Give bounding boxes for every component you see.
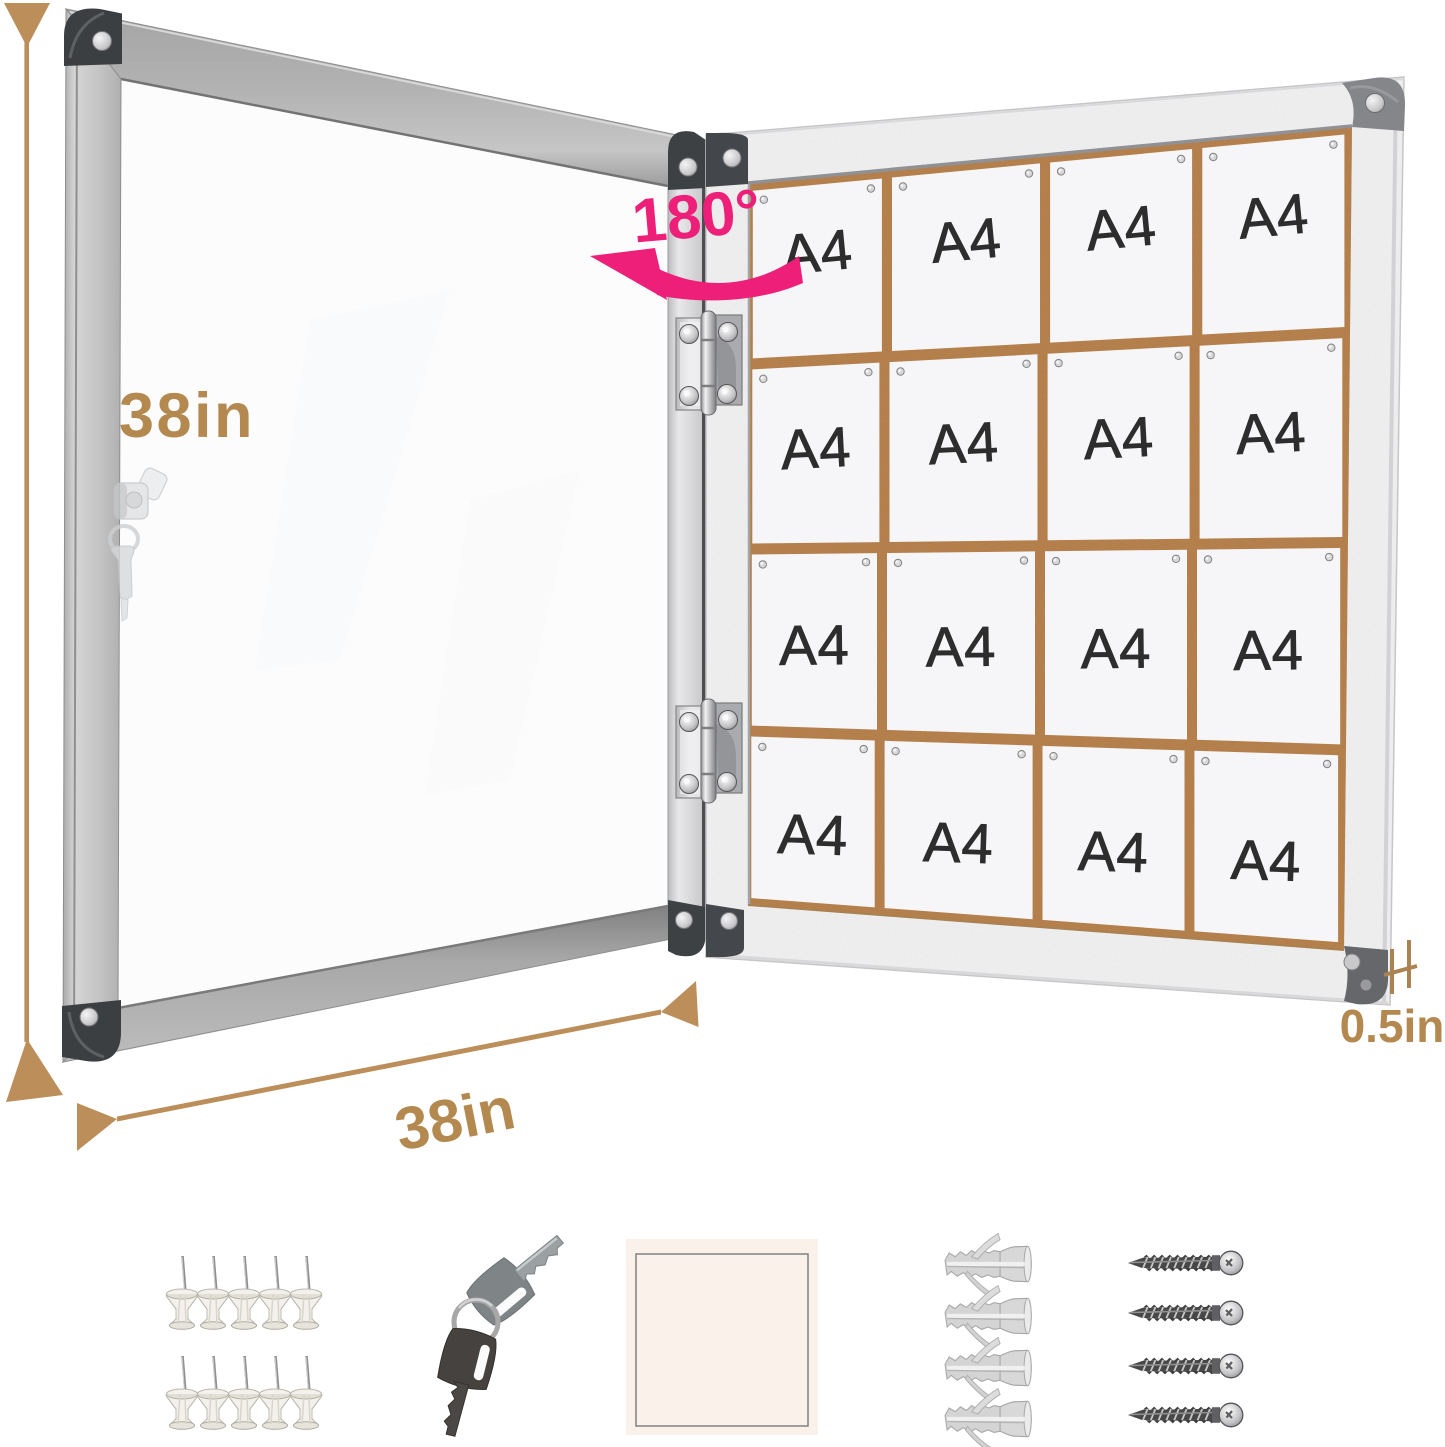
svg-text:A4: A4 — [1230, 828, 1302, 893]
svg-text:A4: A4 — [777, 802, 849, 867]
svg-text:A4: A4 — [1077, 819, 1149, 884]
svg-text:A4: A4 — [1233, 618, 1304, 682]
svg-text:A4: A4 — [922, 810, 994, 875]
svg-text:A4: A4 — [928, 205, 1004, 274]
svg-text:A4: A4 — [1234, 399, 1308, 466]
svg-text:38in: 38in — [119, 381, 255, 451]
svg-text:180°: 180° — [629, 177, 763, 257]
svg-text:A4: A4 — [1083, 193, 1159, 262]
svg-text:A4: A4 — [1082, 404, 1156, 471]
svg-text:A4: A4 — [1235, 181, 1311, 250]
svg-text:A4: A4 — [779, 613, 850, 677]
svg-text:A4: A4 — [1080, 616, 1151, 680]
svg-text:A4: A4 — [779, 415, 853, 482]
svg-text:A4: A4 — [927, 410, 1001, 477]
svg-text:0.5in: 0.5in — [1340, 1000, 1445, 1052]
svg-text:A4: A4 — [925, 615, 996, 679]
